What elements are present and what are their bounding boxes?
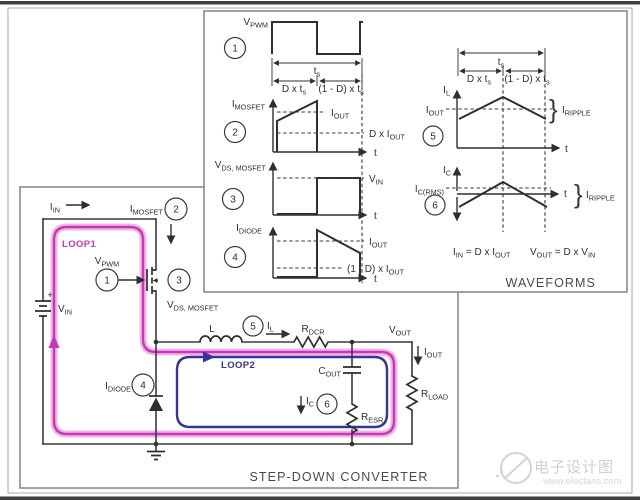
badge-3-schematic: 3 — [176, 276, 182, 287]
badge-4-schematic: 4 — [140, 381, 146, 392]
idiode-t-label: t — [374, 274, 377, 285]
badge-6: 6 — [432, 201, 438, 212]
waveforms-title: WAVEFORMS — [506, 276, 596, 290]
il-t-label: t — [565, 144, 568, 155]
iripple-brace-5: } — [549, 94, 558, 124]
badge-5-schematic: 5 — [250, 322, 256, 333]
converter-title: STEP-DOWN CONVERTER — [249, 470, 428, 484]
watermark: 电子设计图 www.elecfans.com — [496, 453, 622, 487]
ic-t-label: t — [564, 189, 567, 200]
vds-t-label: t — [374, 211, 377, 222]
badge-2: 2 — [232, 128, 238, 139]
badge-3: 3 — [230, 195, 236, 206]
frame-bottom-bar — [0, 497, 640, 501]
loop2-label: LOOP2 — [221, 360, 255, 371]
frame-top-bar — [0, 1, 640, 5]
badge-1-schematic: 1 — [104, 276, 110, 287]
diagram-canvas: VPWM 1 ts D x ts (1 - D) x ts IMOSFET t … — [0, 0, 640, 502]
one-minus-d-ts-label-left: (1 - D) x ts — [318, 84, 364, 97]
one-minus-d-ts-label-right: (1 - D) x ts — [504, 74, 550, 87]
imosfet-t-label: t — [374, 148, 377, 159]
badge-1: 1 — [232, 44, 238, 55]
badge-5: 5 — [430, 132, 436, 143]
watermark-brand-text: 电子设计图 — [534, 459, 614, 476]
figure-buck-converter-current-loops: VPWM 1 ts D x ts (1 - D) x ts IMOSFET t … — [0, 0, 640, 502]
watermark-site-text: www.elecfans.com — [542, 476, 622, 487]
badge-4: 4 — [232, 253, 238, 264]
badge-6-schematic: 6 — [324, 400, 330, 411]
junction-dot-vout-top — [350, 340, 355, 345]
battery-plus-sign: + — [47, 290, 52, 300]
iripple-brace-6: } — [574, 179, 583, 209]
junction-dot-cap-bottom — [350, 442, 355, 447]
loop1-label: LOOP1 — [62, 239, 97, 250]
badge-2-schematic: 2 — [173, 205, 179, 216]
junction-dot-switch-node — [154, 340, 159, 345]
inductor-label: L — [209, 324, 215, 335]
